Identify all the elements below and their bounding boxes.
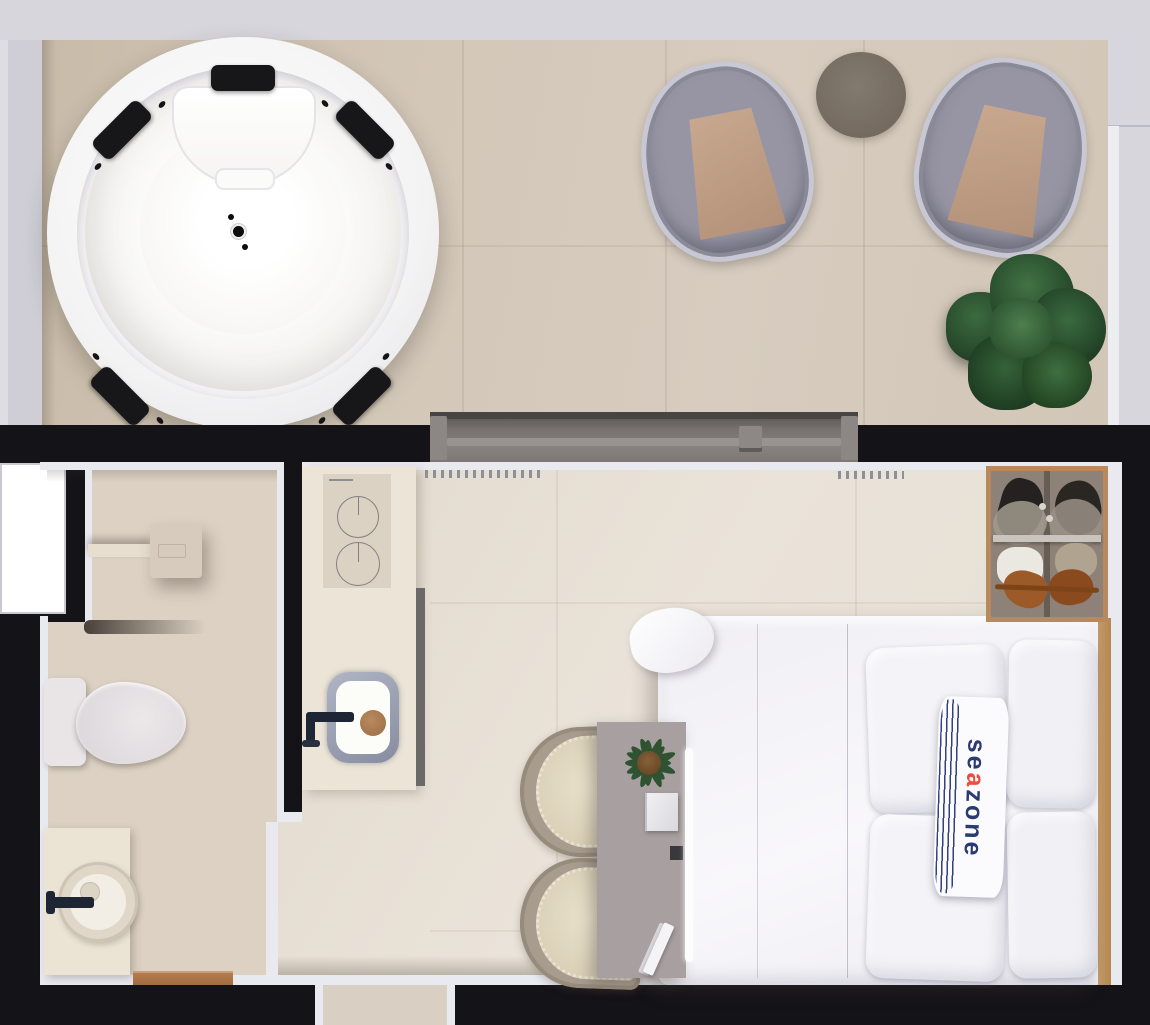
vanity-faucet-handle [46, 891, 55, 914]
door-frame-cap [430, 416, 447, 460]
desk-plant-pot [637, 751, 661, 775]
cooktop-burner [337, 496, 379, 538]
shower-head-detail [158, 544, 186, 558]
brand-part-1: se [961, 738, 990, 773]
terrace-plant [938, 250, 1108, 415]
cooktop [323, 474, 391, 588]
bathroom-door-threshold [133, 971, 233, 985]
terrace-tile-seam [462, 40, 464, 425]
tall-cabinet-strip [416, 588, 425, 786]
wall-face-divider-end [277, 812, 302, 822]
sink-round-board [360, 710, 386, 736]
shower-shelf [84, 620, 206, 634]
desk [597, 722, 686, 978]
kitchen-faucet-body [306, 712, 315, 742]
shower-arm [88, 544, 152, 557]
door-rail [447, 438, 841, 446]
closet-rail [993, 535, 1101, 542]
entry-corridor-floor [323, 985, 447, 1025]
bed-runner: seazone [933, 696, 1010, 898]
curtain-right [838, 471, 904, 479]
runner-brand-text: seazone [956, 708, 991, 889]
wall-face-top [40, 462, 1120, 470]
bed-side-light-strip [685, 748, 693, 962]
round-side-table [816, 52, 906, 138]
shower-head [150, 524, 202, 578]
wall-bath-kitchen-divider [284, 462, 302, 820]
cooktop-controls [329, 479, 353, 481]
jacuzzi-drain [242, 244, 248, 250]
kitchen-faucet-base [302, 740, 320, 747]
desk-phone [670, 846, 683, 860]
jacuzzi-headrest [211, 65, 275, 91]
floor-plan-render: seazone [0, 0, 1150, 1025]
corridor-jamb-right [447, 975, 455, 1025]
plant-foliage [990, 298, 1054, 358]
pillow [1007, 639, 1098, 809]
door-handle [739, 426, 762, 452]
brand-part-3: zone [958, 789, 988, 859]
duvet-fold-edge [847, 624, 848, 978]
hanger-hook [1039, 503, 1046, 510]
sliding-glass-door [430, 412, 858, 462]
jacuzzi-drain [228, 214, 234, 220]
jacuzzi-seat-lip [215, 168, 275, 190]
hanger-hook [1046, 515, 1053, 522]
terrace-right-wall [1108, 126, 1119, 425]
kitchen-faucet [310, 712, 354, 722]
curtain-left [425, 470, 545, 478]
corridor-jamb-left [315, 985, 323, 1025]
open-closet [986, 466, 1108, 622]
cooktop-burner [336, 542, 380, 586]
wall-left-lower [0, 622, 40, 1025]
wall-face-shower-left [85, 462, 92, 622]
duvet-crease [757, 624, 758, 978]
wall-bottom [0, 985, 1150, 1025]
wall-right [1122, 425, 1150, 1025]
door-track [430, 412, 858, 419]
door-frame-cap [841, 416, 858, 460]
void-lightwell [0, 463, 66, 614]
wall-face-divider [277, 462, 284, 820]
brand-part-2: a [961, 772, 990, 790]
wall-face-bath-lower [266, 822, 278, 985]
terrace-outer-band [8, 40, 42, 425]
jacuzzi-drain [233, 226, 244, 237]
headboard-wood [1098, 618, 1111, 985]
pillow [1007, 811, 1098, 979]
terrace-outer-edge [0, 40, 8, 425]
desk-remote [642, 922, 674, 976]
desk-laptop [645, 793, 678, 831]
